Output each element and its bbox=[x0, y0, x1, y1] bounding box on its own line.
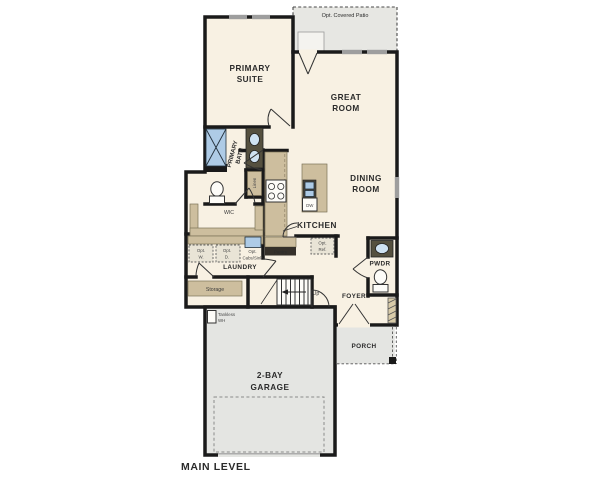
powder-sink bbox=[376, 244, 389, 254]
opt-washer-line2: W. bbox=[198, 255, 203, 260]
opt-dryer-line1: Opt. bbox=[223, 248, 231, 253]
window-suite-2 bbox=[252, 15, 270, 19]
label-wic: WIC bbox=[224, 210, 234, 216]
stairs-up-label: Up bbox=[313, 291, 320, 297]
pantry-label: Pantry bbox=[274, 249, 288, 254]
label-great-room-2: ROOM bbox=[332, 104, 359, 113]
foyer-door-panel bbox=[388, 298, 396, 323]
toilet-tank bbox=[210, 196, 225, 204]
window-dining bbox=[395, 177, 399, 198]
window-suite-1 bbox=[229, 15, 247, 19]
label-great-room-1: GREAT bbox=[331, 93, 362, 102]
tankless-wh-box bbox=[208, 311, 217, 324]
tankless-line1: Tankless bbox=[218, 312, 236, 317]
label-pwdr: PWDR bbox=[369, 261, 390, 268]
opt-ref-line2: Ref. bbox=[318, 247, 326, 252]
window-greatroom-1 bbox=[342, 50, 362, 54]
porch-post bbox=[389, 357, 396, 364]
island-sink-basin-2 bbox=[305, 191, 314, 197]
vanity-sink-2 bbox=[250, 151, 260, 163]
label-primary-suite-2: SUITE bbox=[237, 75, 264, 84]
pantry-shelf bbox=[265, 237, 296, 247]
window-greatroom-2 bbox=[367, 50, 387, 54]
label-linen: Linen bbox=[252, 177, 257, 188]
opt-dryer-line2: D. bbox=[225, 255, 229, 260]
label-laundry: LAUNDRY bbox=[223, 264, 257, 271]
label-foyer: FOYER bbox=[342, 293, 366, 300]
opt-ref-line1: Opt. bbox=[318, 241, 326, 246]
dishwasher-label: DW bbox=[306, 203, 314, 208]
patio-area: Opt. Covered Patio bbox=[293, 7, 397, 52]
floor-plan-page: Opt. Covered Patio bbox=[0, 0, 600, 480]
patio-step bbox=[298, 32, 324, 52]
label-dining-1: DINING bbox=[350, 174, 382, 183]
opt-cabs-sink bbox=[245, 237, 261, 248]
label-garage-1: 2-BAY bbox=[257, 371, 283, 380]
powder-toilet-tank bbox=[373, 285, 388, 293]
floor-plan-canvas: Opt. Covered Patio bbox=[0, 0, 600, 480]
opt-cabs-line1: Opt. bbox=[248, 249, 256, 254]
opt-washer-line1: Opt. bbox=[197, 248, 205, 253]
label-garage-2: GARAGE bbox=[251, 383, 290, 392]
tankless-line2: WH bbox=[218, 318, 225, 323]
label-porch: PORCH bbox=[351, 343, 376, 350]
label-primary-suite-1: PRIMARY bbox=[230, 64, 271, 73]
patio-label: Opt. Covered Patio bbox=[322, 13, 369, 19]
toilet-bowl bbox=[211, 182, 223, 196]
label-kitchen: KITCHEN bbox=[297, 221, 337, 230]
label-dining-2: ROOM bbox=[352, 185, 379, 194]
powder-toilet-bowl bbox=[374, 270, 386, 284]
opt-cabs-line2: Cabs/Sink bbox=[242, 255, 263, 260]
vanity-sink-1 bbox=[250, 134, 260, 146]
island-sink-basin-1 bbox=[305, 182, 314, 189]
garage-floor bbox=[205, 307, 335, 455]
storage-label: Storage bbox=[206, 287, 224, 293]
plan-title: MAIN LEVEL bbox=[181, 461, 251, 473]
